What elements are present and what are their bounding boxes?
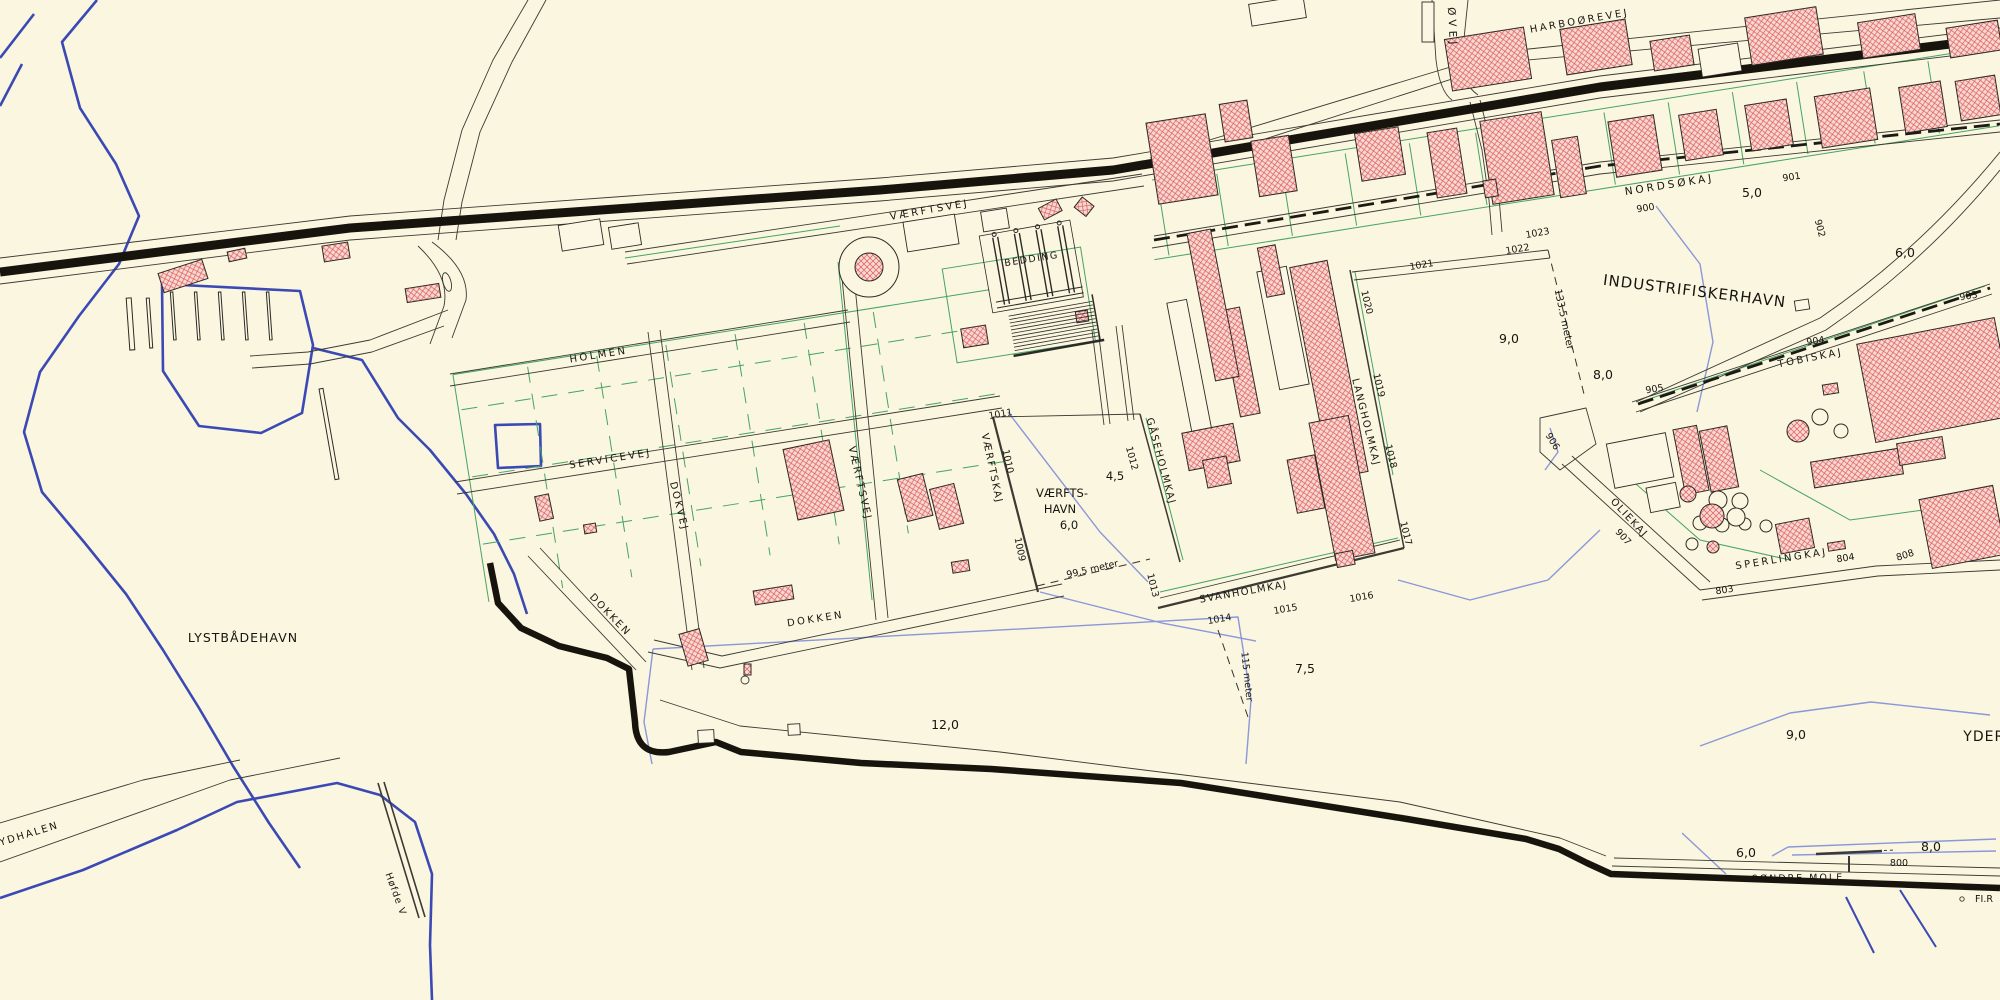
depth-label-80-industri: 8,0: [1593, 367, 1613, 382]
depth-label-60-industri: 6,0: [1895, 245, 1915, 260]
nav-label-fir: FI.R: [1975, 894, 1993, 905]
area-label-vaerftshavn-2: HAVN: [1044, 502, 1076, 516]
berth-label-800: 800: [1890, 858, 1908, 869]
area-label-vaerftshavn-1: VÆRFTS-: [1036, 486, 1088, 500]
depth-label-75: 7,5: [1295, 661, 1315, 676]
depth-label-45: 4,5: [1106, 469, 1124, 483]
harbor-map-canvas: HARBOØREVEJ ØVEJ NORDSØKAJ VÆRFTSVEJ VÆR…: [0, 0, 2000, 1000]
depth-label-90-industri: 9,0: [1499, 331, 1519, 346]
depth-label-120: 12,0: [931, 717, 959, 732]
area-label-yderhavn: YDERH: [1962, 729, 2000, 745]
depth-label-50: 5,0: [1742, 185, 1762, 200]
quay-label-soendre-mole: SØNDRE MOLE: [1752, 872, 1845, 885]
depth-label-80-soendre: 8,0: [1921, 839, 1941, 854]
area-label-lystbaadehavn: LYSTBÅDEHAVN: [188, 630, 298, 645]
road-label-oevej: ØVEJ: [1445, 7, 1459, 49]
harbor-map: HARBOØREVEJ ØVEJ NORDSØKAJ VÆRFTSVEJ VÆR…: [0, 0, 2000, 1000]
depth-label-60-soendre: 6,0: [1736, 845, 1756, 860]
depth-label-vaerftshavn: 6,0: [1060, 518, 1078, 532]
depth-label-90-yderhavn: 9,0: [1786, 727, 1806, 742]
